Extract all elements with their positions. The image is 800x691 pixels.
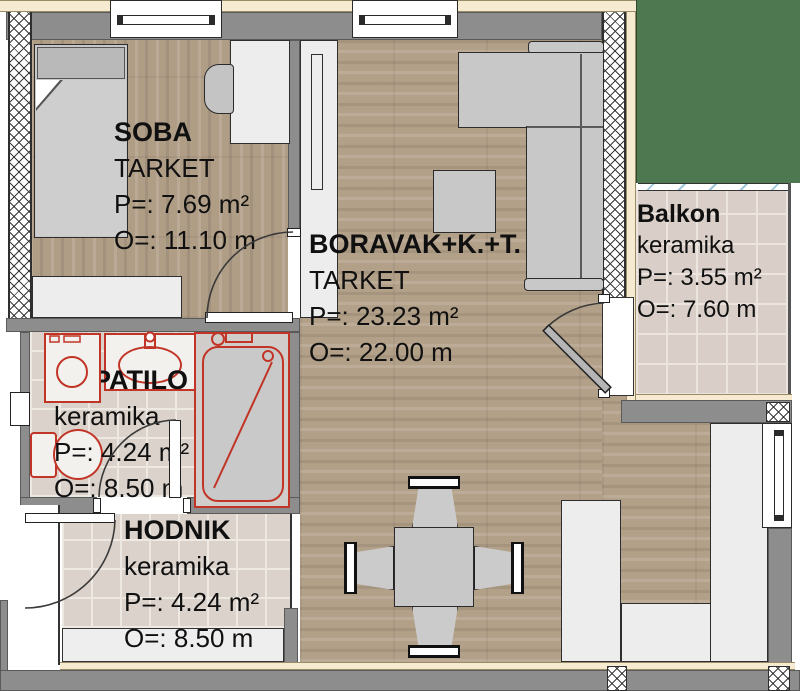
balcony-door-jamb-top [598,294,610,303]
living-floor-type: TARKET [309,262,521,298]
bathroom-door-jamb-right [183,498,191,513]
balcony-glazing [638,183,790,191]
floor-plan: SOBA TARKET P=: 7.69 m² O=: 11.10 m BORA… [0,0,800,691]
bathroom-door-leaf [169,420,181,498]
dining-chair-bottom [412,606,458,646]
kitchen-window-glazing [774,430,784,521]
bedroom-window-glazing [117,15,215,25]
hall-name: HODNIK [124,512,259,548]
kitchen-window [762,423,792,528]
insulation-block-right-top [766,402,790,422]
coffee-table [433,170,496,233]
grass-area [636,0,800,183]
wall-right-column [768,528,792,668]
stairwell-outside [8,505,60,665]
bedroom-window [110,0,222,38]
bathroom-door-jamb-left [93,498,101,513]
dining-chair-top-back [408,476,460,489]
dining-chair-top [412,488,458,528]
kitchen-cabinet-tall [561,500,621,662]
sofa-seam-vertical [580,54,582,278]
balcony-area: P=: 3.55 m² [637,262,762,294]
insulation-block-bottom-2 [768,666,790,691]
bed-pillow [37,47,125,79]
bedroom-name: SOBA [114,114,256,150]
dining-chair-bottom-back [408,645,460,658]
wall-living-balcony-insulated [602,12,626,298]
dining-table [394,527,474,607]
wall-top [6,12,602,40]
dining-chair-right-back [511,542,524,594]
hall-living-edge [290,514,292,608]
wardrobe [32,276,182,318]
balcony-door-frame [602,297,634,396]
living-window [352,0,458,38]
dining-chair-left [356,546,394,590]
bed-blanket [36,80,126,236]
sofa-armrest [524,278,604,291]
bedroom-floor-type: TARKET [114,150,256,186]
balcony-perimeter: O=: 7.60 m [637,294,762,326]
facade-strip-top [0,0,636,12]
wall-bottom [0,670,800,691]
living-name: BORAVAK+K.+T. [309,226,521,262]
kitchen-counter-right [710,423,768,662]
living-label: BORAVAK+K.+T. TARKET P=: 23.23 m² O=: 22… [309,226,521,370]
bedroom-door-jamb [287,228,301,237]
living-area: P=: 23.23 m² [309,298,521,334]
bedroom-label: SOBA TARKET P=: 7.69 m² O=: 11.10 m [114,114,256,258]
balcony-name: Balkon [637,198,762,230]
hall-perimeter: O=: 8.50 m [124,620,259,656]
hall-label: HODNIK keramika P=: 4.24 m² O=: 8.50 m [124,512,259,656]
balcony-door-jamb-bottom [598,389,610,398]
balcony-label: Balkon keramika P=: 3.55 m² O=: 7.60 m [637,198,762,326]
sofa-seam-horizontal [527,126,603,128]
living-window-glazing [359,15,451,25]
bedroom-door-leaf [205,312,293,323]
wall-hall-stub [284,608,298,670]
sofa-chaise [526,126,604,280]
bedroom-area: P=: 7.69 m² [114,186,256,222]
hall-floor-type: keramika [124,548,259,584]
outside-right-margin [791,183,800,662]
sofa-seat-top [458,52,604,128]
shaft-niche [10,392,30,426]
wall-left-insulated [8,12,32,332]
facade-strip-bottom [60,662,795,670]
bedroom-perimeter: O=: 11.10 m [114,222,256,258]
dining-chair-right [474,546,512,590]
living-perimeter: O=: 22.00 m [309,334,521,370]
balcony-floor-type: keramika [637,230,762,262]
hall-area: P=: 4.24 m² [124,584,259,620]
insulation-block-bottom-1 [607,666,627,691]
entrance-door-leaf [25,513,115,523]
bathtub-inner [202,346,284,502]
desk-chair [204,64,234,114]
shelf-unit-detail [311,54,323,190]
washing-machine-door [56,356,88,388]
dining-chair-left-back [344,542,357,594]
